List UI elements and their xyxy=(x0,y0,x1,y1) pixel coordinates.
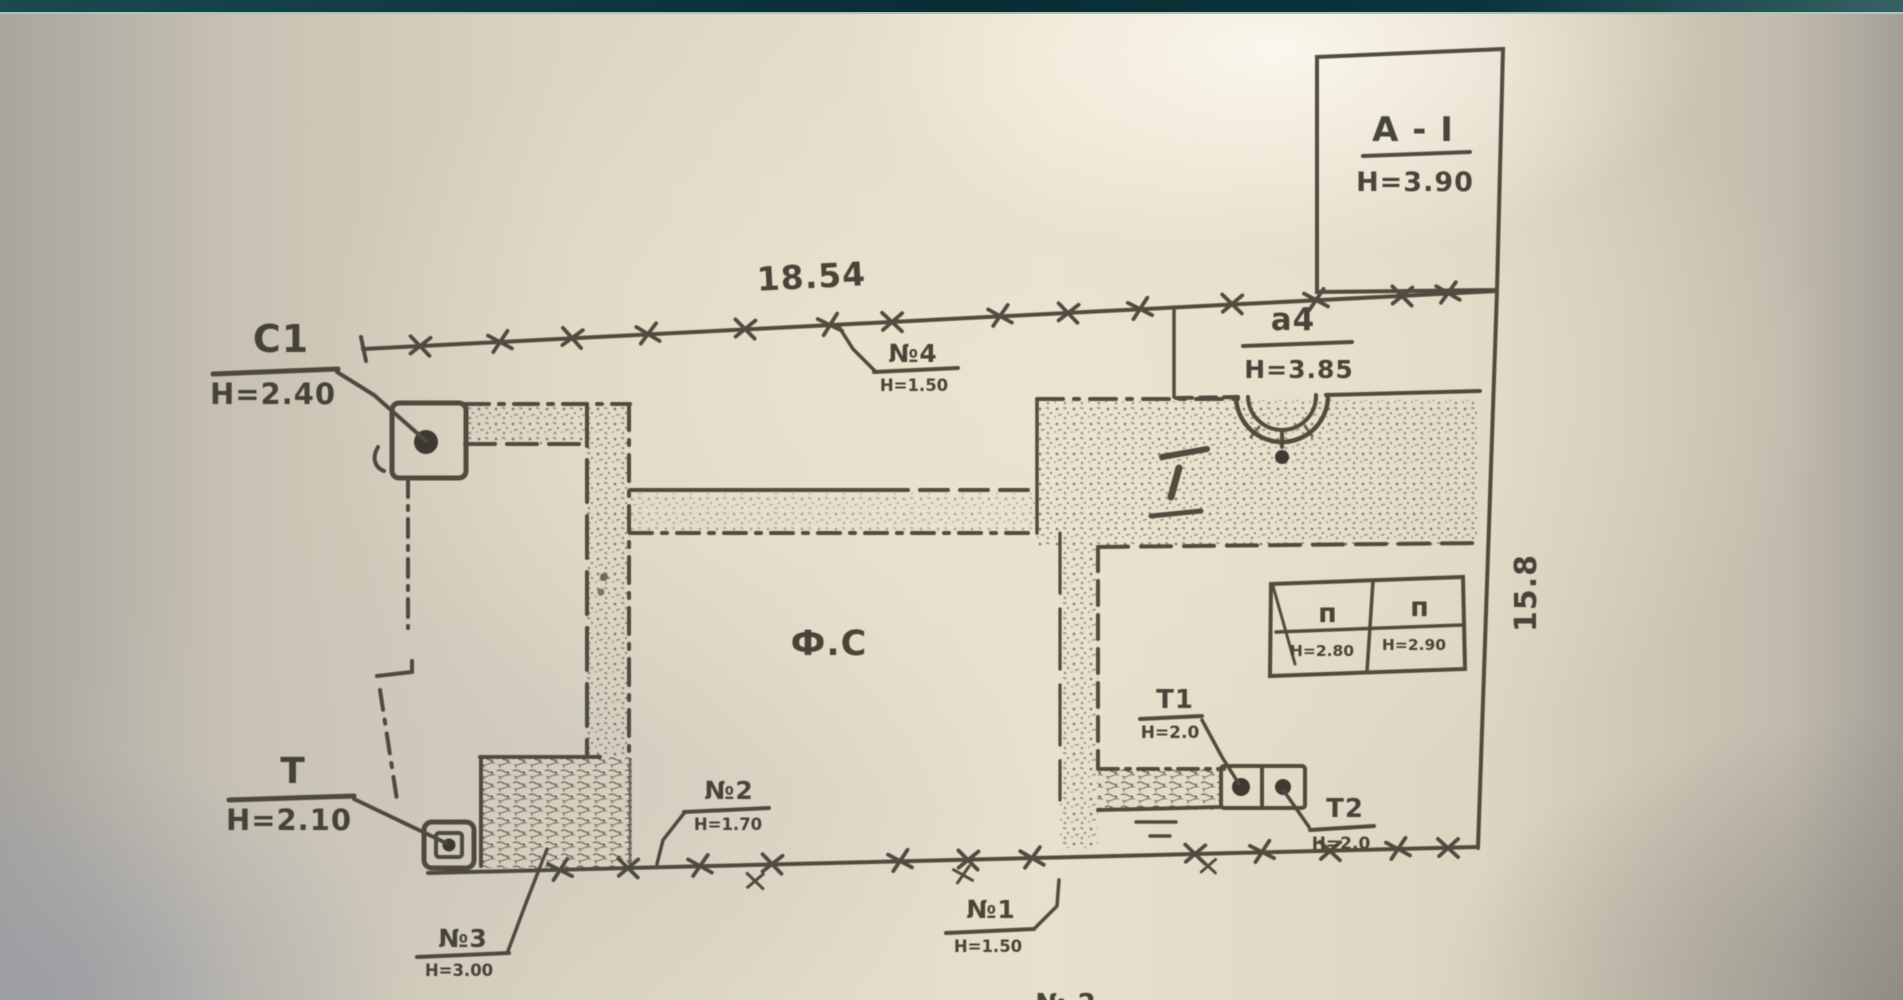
label-p-left-height: H=2.80 xyxy=(1290,642,1354,660)
n2-leader xyxy=(657,812,685,864)
label-p-left: п xyxy=(1318,598,1338,629)
label-t: T xyxy=(280,751,306,792)
block-a1-height: H=3.90 xyxy=(1356,167,1474,198)
scanned-site-plan: A - I H=3.90 a4 H=3.85 xyxy=(0,0,1903,1000)
label-t2: T2 xyxy=(1326,794,1364,824)
wall-left-vertical xyxy=(586,404,630,757)
block-a4-name: a4 xyxy=(1271,302,1316,338)
label-t-height: H=2.10 xyxy=(226,803,352,837)
wall-band-middle xyxy=(630,493,1036,532)
bottom-partial-text: № 2 xyxy=(1035,989,1096,1000)
label-t-underline xyxy=(229,796,354,800)
label-c1: C1 xyxy=(253,317,309,361)
drawing: A - I H=3.90 a4 H=3.85 xyxy=(210,49,1544,1000)
label-t2-underline xyxy=(1310,826,1374,830)
fence-top-start-tick xyxy=(361,337,366,361)
block-a4-underline xyxy=(1243,342,1352,346)
wall-right-vertical xyxy=(1060,546,1098,848)
label-t1-underline xyxy=(1140,716,1202,719)
room-label-fs: Ф.С xyxy=(791,624,868,664)
label-t2-height: H=2.0 xyxy=(1312,834,1371,854)
dimension-top: 18.54 xyxy=(756,254,867,299)
block-a4-height: H=3.85 xyxy=(1244,355,1354,384)
label-t1: T1 xyxy=(1156,685,1194,715)
label-c1-height: H=2.40 xyxy=(210,377,336,411)
label-n2-height: H=1.70 xyxy=(694,815,762,834)
label-n1: №1 xyxy=(966,895,1015,924)
post-c1-leader xyxy=(337,372,426,441)
label-n1-underline xyxy=(946,929,1034,933)
label-c1-underline xyxy=(213,369,338,374)
block-bottom-left xyxy=(480,757,632,868)
boundary-left-step xyxy=(377,661,412,676)
label-n3-underline xyxy=(417,953,509,957)
n1-leader xyxy=(1034,880,1059,929)
wall-band-top-left xyxy=(465,405,589,444)
label-n3-height: H=3.00 xyxy=(425,961,493,980)
label-n2-underline xyxy=(684,808,769,812)
arch-pendant-dot xyxy=(1275,450,1289,464)
dimension-right: 15.8 xyxy=(1509,554,1544,632)
p-boxes: п п H=2.80 H=2.90 xyxy=(1270,577,1465,676)
wall-band-bottom-right xyxy=(1098,768,1222,810)
post-t1-dot xyxy=(1232,778,1250,796)
block-a1: A - I H=3.90 xyxy=(1317,49,1503,292)
block-a1-name: A - I xyxy=(1372,110,1454,150)
n4-leader xyxy=(839,327,875,371)
label-p-right: п xyxy=(1410,592,1430,623)
screenshot-stage: A - I H=3.90 a4 H=3.85 xyxy=(0,0,1903,1000)
label-n4: №4 xyxy=(888,339,937,368)
boundary-right xyxy=(1478,291,1497,848)
block-a1-underline xyxy=(1363,152,1470,156)
label-n2: №2 xyxy=(704,776,753,805)
label-n1-height: H=1.50 xyxy=(954,937,1022,956)
label-p-right-height: H=2.90 xyxy=(1382,636,1446,654)
label-n3: №3 xyxy=(438,924,487,953)
boundary-left-lower xyxy=(380,690,397,800)
label-n4-underline xyxy=(874,368,958,372)
label-t1-height: H=2.0 xyxy=(1141,723,1200,743)
block-a4: a4 H=3.85 xyxy=(1243,302,1354,384)
post-t: T H=2.10 xyxy=(226,751,474,868)
label-n4-height: H=1.50 xyxy=(880,376,948,395)
